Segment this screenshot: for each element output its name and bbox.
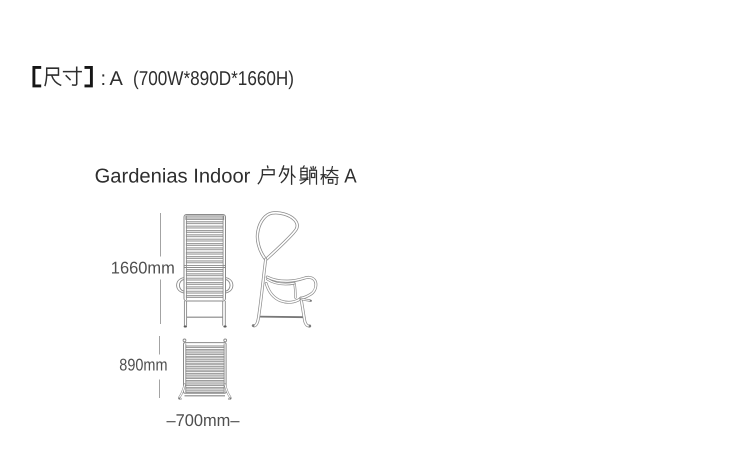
svg-text:1660mm: 1660mm — [111, 259, 175, 278]
svg-text:Gardenias Indoor: Gardenias Indoor — [95, 166, 251, 188]
svg-text:(700W*890D*1660H): (700W*890D*1660H) — [133, 68, 294, 90]
svg-text:–700mm–: –700mm– — [167, 411, 241, 430]
svg-text:890mm: 890mm — [119, 356, 167, 375]
svg-text:: A: : A — [101, 68, 124, 90]
svg-text:A: A — [344, 166, 357, 188]
